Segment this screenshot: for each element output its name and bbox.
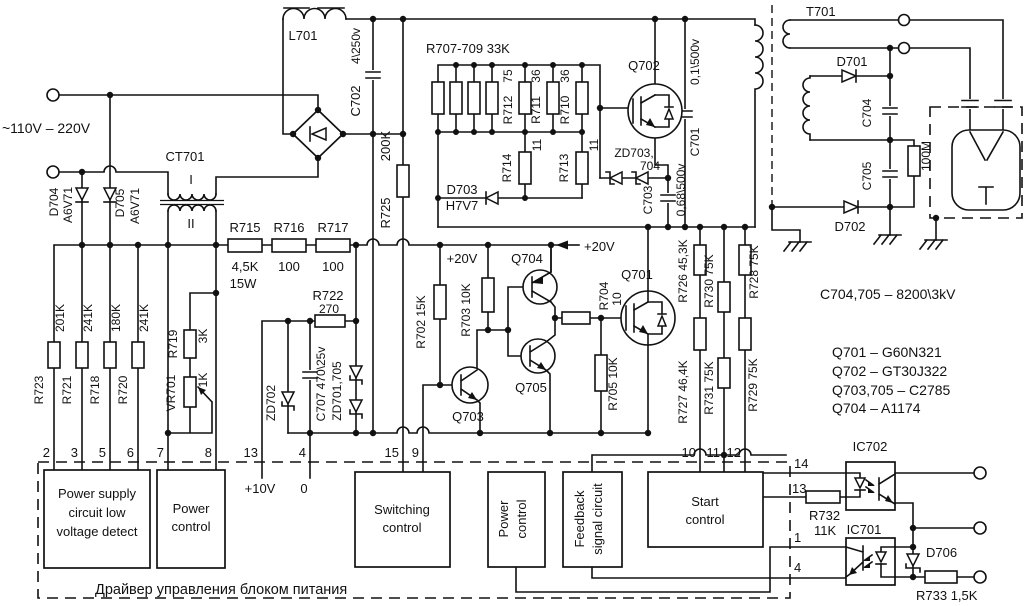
- block1-line2: circuit low: [68, 505, 126, 520]
- vr701-value: 1K: [196, 373, 210, 388]
- zd703-704-label1: ZD703,: [614, 146, 653, 160]
- r711-value: 36: [529, 69, 543, 83]
- schematic-page: ~110V – 220V L701 4\250v C702 D704 A6V71…: [0, 0, 1028, 606]
- block1-line1: Power supply: [58, 486, 137, 501]
- inductor-L701: [283, 8, 346, 19]
- ground-icon: [784, 242, 811, 251]
- r715-label: R715: [229, 220, 260, 235]
- r725-label: R725: [378, 197, 393, 228]
- r718-value: 180K: [109, 304, 123, 332]
- pin-6: 6: [127, 445, 134, 460]
- pin-13b: 13: [792, 481, 806, 496]
- pin-1: 1: [794, 530, 801, 545]
- output-terminal-2: [974, 522, 986, 534]
- zd702-label: ZD702: [264, 385, 278, 421]
- c704-label: C704: [860, 98, 874, 127]
- ic702-label: IC702: [853, 439, 888, 454]
- pin-8: 8: [205, 445, 212, 460]
- block3-line1: Switching: [374, 502, 430, 517]
- input-voltage-label: ~110V – 220V: [2, 120, 91, 136]
- d705-value: A6V71: [128, 188, 142, 224]
- pin-14: 14: [794, 456, 808, 471]
- block6-line2: control: [685, 512, 724, 527]
- output-terminal-1: [974, 467, 986, 479]
- c703-label: C703: [641, 185, 655, 214]
- function-blocks: [44, 470, 763, 568]
- r719-value: 3K: [196, 329, 210, 344]
- r707-709-label: R707-709 33K: [426, 41, 510, 56]
- block2-line2: control: [171, 519, 210, 534]
- r723-label: R723: [32, 375, 46, 404]
- r712-label: R712: [501, 95, 515, 124]
- transistor-Q701: [621, 291, 675, 345]
- transistor-Q703: [452, 367, 488, 403]
- d703-value: H7V7: [446, 198, 479, 213]
- pin-13: 13: [244, 445, 258, 460]
- c705-label: C705: [860, 161, 874, 190]
- transistor-Q705: [521, 339, 555, 373]
- winding2-label: II: [187, 216, 194, 231]
- r717-value: 100: [322, 259, 344, 274]
- r731-label: R731 75K: [702, 361, 716, 414]
- parts-q701: Q701 – G60N321: [832, 344, 942, 360]
- plus20v-arrow: [556, 241, 568, 250]
- pin-2: 2: [43, 445, 50, 460]
- r732-value: 11K: [814, 523, 836, 538]
- pin-11: 11: [707, 445, 721, 460]
- r714-label: R714: [500, 153, 514, 182]
- block5-line1: Feedback: [572, 490, 587, 548]
- schematic-canvas: ~110V – 220V L701 4\250v C702 D704 A6V71…: [0, 0, 1028, 606]
- q702-label: Q702: [628, 58, 660, 73]
- zd701-705-label: ZD701,705: [330, 361, 344, 421]
- zero-label: 0: [300, 481, 307, 496]
- r720-label: R720: [116, 375, 130, 404]
- block6-line1: Start: [691, 494, 719, 509]
- r710-label: R710: [558, 95, 572, 124]
- optocoupler-IC702: [846, 462, 895, 510]
- ground-icon: [920, 240, 947, 249]
- filament-terminal-1: [899, 15, 910, 26]
- d704-value: A6V71: [61, 187, 75, 223]
- c707-label: C707 470\25v: [314, 347, 328, 422]
- r733-label: R733 1,5K: [916, 588, 978, 603]
- transformer-T701: [755, 5, 810, 227]
- block3-line2: control: [382, 520, 421, 535]
- block2-line1: Power: [173, 501, 211, 516]
- transformer-CT701: [160, 194, 224, 211]
- pin-7: 7: [157, 445, 164, 460]
- parts-q702: Q702 – GT30J322: [832, 363, 947, 379]
- block5-line2: signal circuit: [590, 483, 605, 555]
- t701-label: T701: [806, 4, 836, 19]
- d706-label: D706: [926, 545, 957, 560]
- c701-label: C701: [688, 127, 702, 156]
- r703-label: R703 10K: [459, 283, 473, 336]
- r702-label: R702 15K: [414, 295, 428, 348]
- c703-value: 0,68\500v: [674, 164, 688, 217]
- r715-value2: 15W: [230, 276, 257, 291]
- r705-label: R705 10K: [606, 357, 620, 410]
- vr701-label: VR701: [164, 374, 178, 411]
- r723-value: 201K: [53, 304, 67, 332]
- ac-input-terminal-2: [47, 166, 59, 178]
- parts-q704: Q704 – A1174: [832, 400, 921, 416]
- r714-value: 11: [530, 138, 544, 151]
- d704-label: D704: [47, 187, 61, 216]
- ac-input-terminal-1: [47, 89, 59, 101]
- c702-label: C702: [348, 85, 363, 116]
- block1-line3: voltage detect: [57, 524, 138, 539]
- pin-3: 3: [71, 445, 78, 460]
- r726-label: R726 45,3K: [676, 239, 690, 302]
- r712-value: 75: [501, 69, 515, 83]
- winding1-label: I: [189, 172, 193, 187]
- d703-label: D703: [446, 182, 477, 197]
- c701-value: 0,1\500v: [688, 39, 702, 85]
- magnetron: [930, 107, 1022, 218]
- transistor-Q702: [628, 84, 682, 138]
- ground-icon: [874, 235, 901, 244]
- r719-label: R719: [166, 329, 180, 358]
- pin-5: 5: [99, 445, 106, 460]
- r718-label: R718: [88, 375, 102, 404]
- r710-value: 36: [558, 69, 572, 83]
- plus20v-label-2: +20V: [584, 239, 615, 254]
- plus10v-label: +10V: [245, 481, 276, 496]
- block4-line1: Power: [496, 500, 511, 538]
- parts-q703: Q703,705 – C2785: [832, 382, 951, 398]
- r721-value: 241K: [81, 304, 95, 332]
- l701-label: L701: [289, 28, 318, 43]
- r704-label: R704: [597, 281, 611, 310]
- r704-value: 10: [610, 292, 624, 306]
- pin-15: 15: [385, 445, 399, 460]
- d701-label: D701: [836, 54, 867, 69]
- zd703-704-label2: 704: [640, 159, 660, 173]
- r720-value: 241K: [137, 304, 151, 332]
- r721-label: R721: [60, 375, 74, 404]
- r100m-label: 100M: [919, 141, 933, 171]
- r711-label: R711: [529, 96, 543, 124]
- q703-label: Q703: [452, 409, 484, 424]
- r732-label: R732: [809, 508, 840, 523]
- q704-label: Q704: [511, 251, 543, 266]
- r716-value: 100: [278, 259, 300, 274]
- r725-value: 200K: [378, 130, 393, 161]
- r722-value: 270: [319, 302, 339, 316]
- d702-label: D702: [834, 219, 865, 234]
- r713-value: 11: [587, 138, 601, 151]
- bridge-rectifier: [293, 110, 343, 158]
- r715-value1: 4,5K: [232, 259, 259, 274]
- r730-label: R730 75K: [702, 254, 716, 307]
- pin-12: 12: [727, 445, 741, 460]
- r722-label: R722: [312, 288, 343, 303]
- pin-9: 9: [412, 445, 419, 460]
- pin-10: 10: [682, 445, 696, 460]
- r728-label: R728 75K: [747, 245, 761, 298]
- driver-caption: Драйвер управления блоком питания: [95, 582, 347, 598]
- plus20v-label-1: +20V: [447, 251, 478, 266]
- optocoupler-IC701: [846, 538, 895, 585]
- block4-line2: control: [514, 499, 529, 538]
- c704-705-note: C704,705 – 8200\3kV: [820, 286, 956, 302]
- r729-label: R729 75K: [746, 358, 760, 411]
- pin-4: 4: [299, 445, 306, 460]
- pin-4b: 4: [794, 560, 801, 575]
- r713-label: R713: [557, 153, 571, 182]
- block-start-control: [648, 472, 763, 547]
- d705-label: D705: [113, 188, 127, 217]
- r717-label: R717: [317, 220, 348, 235]
- r716-label: R716: [273, 220, 304, 235]
- ct701-label: CT701: [165, 149, 204, 164]
- ic701-label: IC701: [847, 522, 882, 537]
- c702-value: 4\250v: [349, 28, 363, 64]
- q705-label: Q705: [515, 380, 547, 395]
- filament-terminal-2: [899, 43, 910, 54]
- q701-label: Q701: [621, 267, 653, 282]
- output-terminal-3: [974, 571, 986, 583]
- ground-symbols: [784, 235, 947, 251]
- r727-label: R727 46,4K: [676, 360, 690, 423]
